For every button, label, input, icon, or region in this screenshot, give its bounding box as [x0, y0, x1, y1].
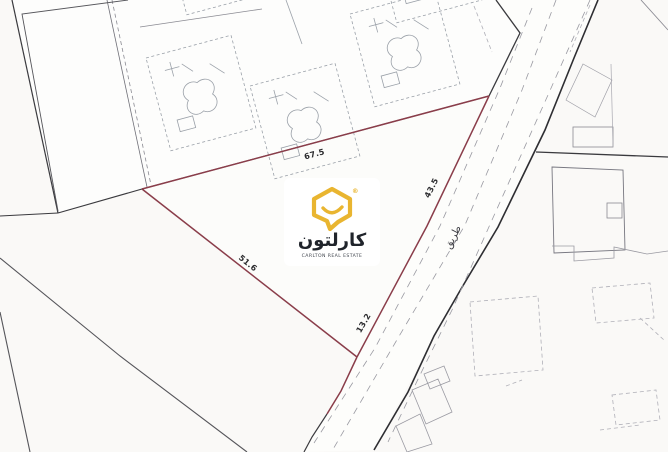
registered-trademark: ® — [352, 187, 359, 195]
dashed-footprints-southeast — [470, 283, 664, 430]
brand-name-english: CARLTON REAL ESTATE — [302, 253, 363, 259]
carlton-logo: ® كارلتون CARLTON REAL ESTATE — [284, 178, 380, 266]
neighbour-boundaries-southwest — [0, 258, 247, 452]
site-plan-screenshot: 67.5 43.5 51.6 13.2 طريق ® كارلتون CARLT… — [0, 0, 668, 452]
brand-name-arabic: كارلتون — [298, 230, 367, 251]
site-plan-map: 67.5 43.5 51.6 13.2 طريق ® كارلتون CARLT… — [0, 0, 668, 452]
